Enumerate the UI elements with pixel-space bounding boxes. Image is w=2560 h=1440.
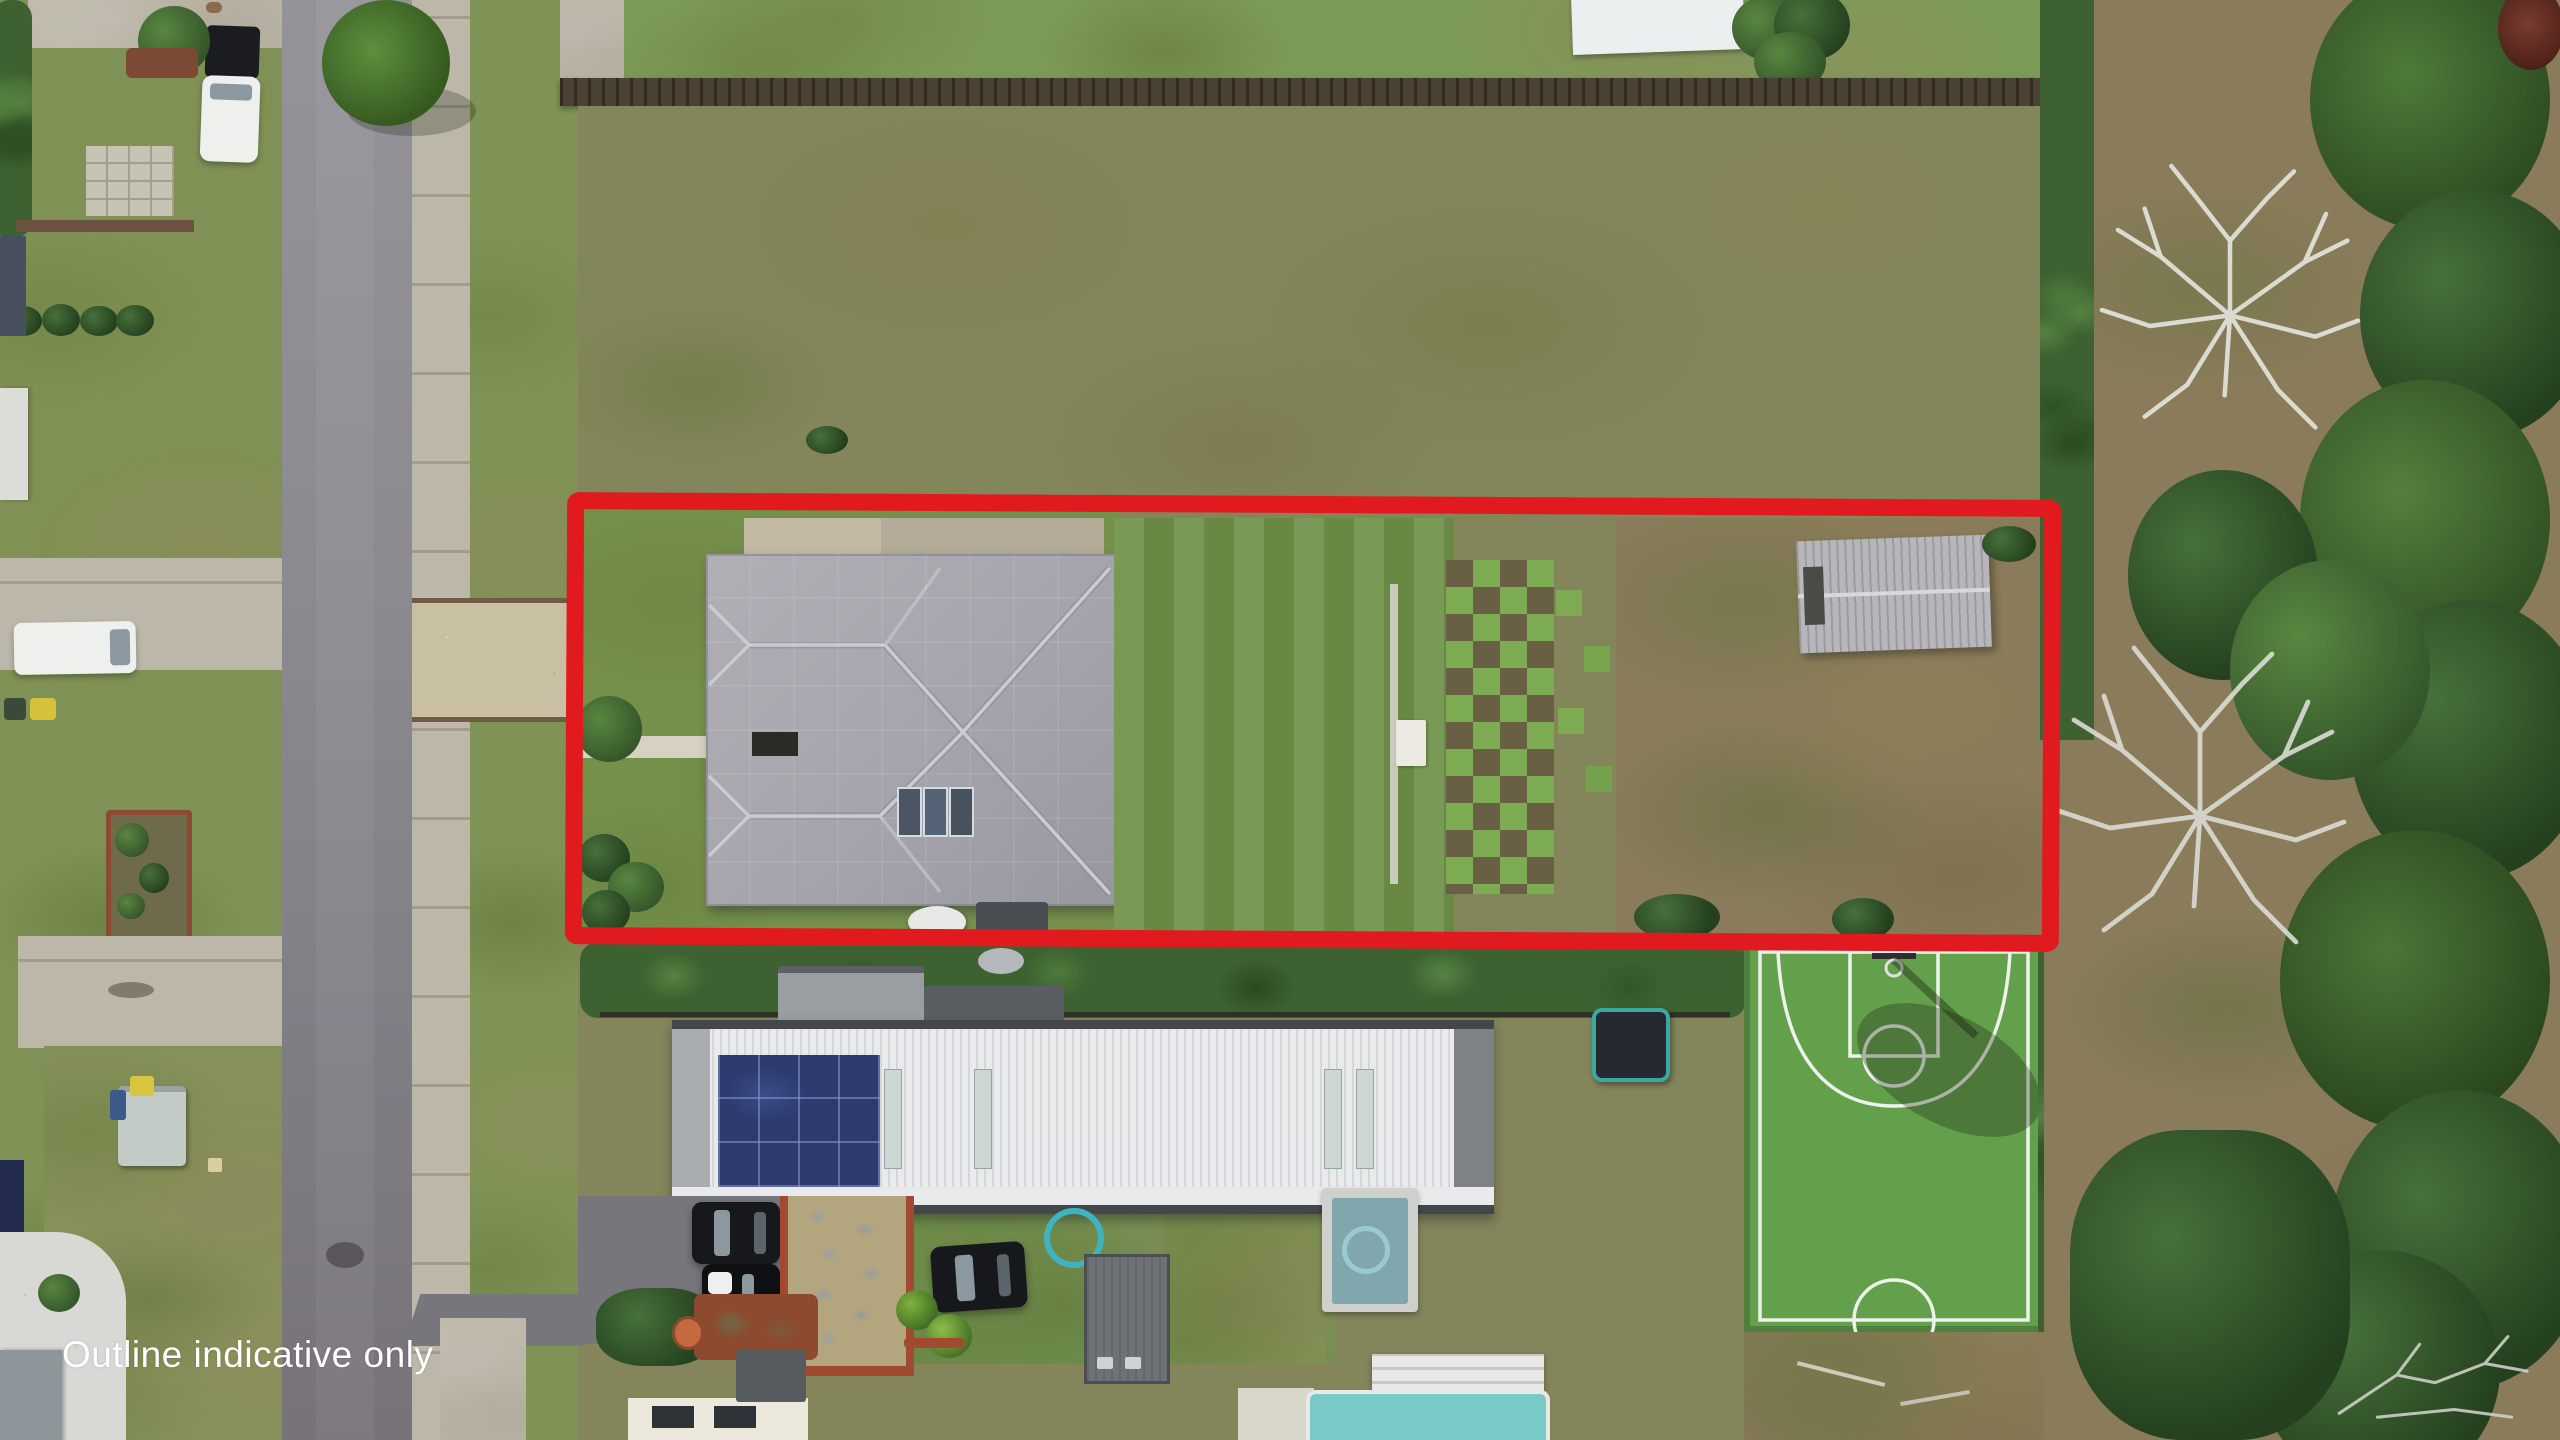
neighbor-white-building bbox=[1571, 0, 1745, 55]
aerial-photo: Outline indicative only bbox=[0, 0, 2560, 1440]
top-neighbor-path bbox=[560, 0, 624, 80]
black-suv bbox=[692, 1202, 780, 1264]
plunge-pool bbox=[1332, 1198, 1408, 1304]
timber-edge bbox=[16, 220, 194, 232]
driveway-apron bbox=[440, 1318, 526, 1440]
skylight-strip bbox=[974, 1069, 992, 1169]
watermark-text: Outline indicative only bbox=[62, 1334, 433, 1376]
neighbor-driveway-bottom bbox=[18, 936, 314, 1048]
neighbor-solar-roof bbox=[0, 1160, 24, 1242]
green-bin bbox=[4, 698, 26, 720]
utility-units bbox=[778, 966, 924, 1027]
neighbor-roof-gray bbox=[0, 1350, 62, 1440]
basketball-court bbox=[1744, 940, 2044, 1332]
garden-bed-edged bbox=[106, 810, 192, 942]
road-wear-band bbox=[316, 0, 374, 1440]
paver-patch bbox=[86, 146, 174, 216]
utility-roof bbox=[924, 986, 1064, 1024]
small-gray-shed bbox=[1084, 1254, 1170, 1384]
bushland-bottom-canopy bbox=[2070, 1130, 2350, 1440]
terracotta-pot bbox=[672, 1316, 704, 1350]
boundary-fence-line bbox=[600, 1012, 1730, 1017]
neighbor-roof-white bbox=[0, 388, 28, 500]
skylight-strip bbox=[1324, 1069, 1342, 1169]
small-palm bbox=[38, 1274, 80, 1312]
patio bbox=[1238, 1388, 1314, 1440]
street-tree bbox=[322, 0, 450, 126]
skylight-strip bbox=[884, 1069, 902, 1169]
yellow-lid-bin bbox=[130, 1076, 154, 1096]
skylight-strip bbox=[1356, 1069, 1374, 1169]
dead-branches bbox=[2320, 1310, 2550, 1440]
garden-bed bbox=[126, 48, 198, 78]
blue-bin bbox=[110, 1090, 126, 1120]
swimming-pool bbox=[1306, 1390, 1550, 1440]
tire-mark bbox=[326, 1242, 364, 1268]
bottom-gray-box bbox=[736, 1350, 806, 1402]
hedge-row bbox=[4, 304, 154, 338]
tropical-garden-bed bbox=[896, 1286, 976, 1366]
utility-cabinet bbox=[118, 1086, 186, 1166]
property-boundary-outline bbox=[565, 492, 2061, 952]
water-tank bbox=[978, 948, 1024, 974]
dead-tree bbox=[2070, 130, 2390, 490]
trampoline bbox=[1592, 1008, 1670, 1082]
boundary-hedge bbox=[580, 942, 1746, 1018]
dead-tree bbox=[2020, 590, 2380, 1030]
bottom-white-building bbox=[628, 1398, 808, 1440]
white-van bbox=[14, 621, 137, 675]
solar-panel-array bbox=[718, 1055, 880, 1187]
lower-house-roof bbox=[672, 1020, 1494, 1214]
back-paddock bbox=[578, 106, 2044, 506]
ground-below-court bbox=[1744, 1332, 2044, 1440]
pool-side-lawn bbox=[1164, 1190, 1326, 1364]
hedge bbox=[0, 0, 32, 238]
marker bbox=[208, 1158, 222, 1172]
yellow-lid-bin bbox=[30, 698, 56, 720]
small-shrub bbox=[806, 426, 848, 454]
neighbor-roof-dark bbox=[0, 236, 26, 336]
oil-stain bbox=[108, 982, 154, 998]
boundary-fence-top bbox=[560, 78, 2044, 106]
dog bbox=[206, 2, 222, 13]
